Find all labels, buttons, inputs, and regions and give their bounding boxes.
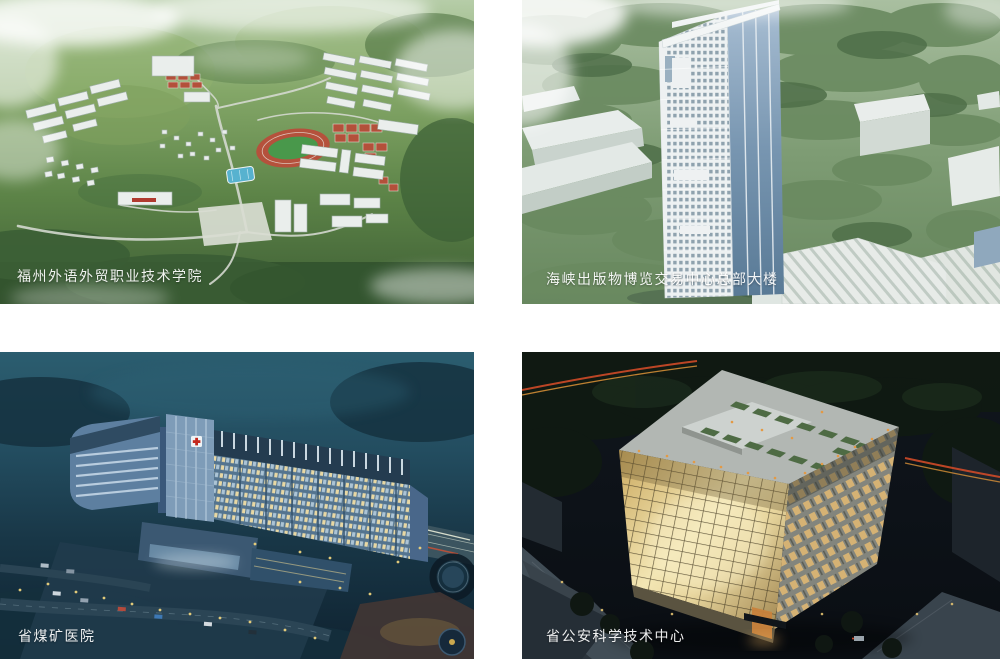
- project-figure-campus: [0, 0, 474, 304]
- portfolio-page: 福州外语外贸职业技术学院 海峡出版物博览交易中心总部大楼 省煤矿医院 省公安科学…: [0, 0, 1000, 659]
- project-caption-tech: 省公安科学技术中心: [546, 628, 686, 646]
- campus-aerial-photo: [0, 0, 474, 304]
- project-figure-hospital: [0, 352, 474, 659]
- project-caption-campus: 福州外语外贸职业技术学院: [17, 268, 203, 286]
- project-caption-hospital: 省煤矿医院: [18, 628, 96, 646]
- tech-center-night-photo: [522, 352, 1000, 659]
- project-figure-tower: [522, 0, 1000, 304]
- tower-aerial-photo: [522, 0, 1000, 304]
- project-caption-tower: 海峡出版物博览交易中心总部大楼: [546, 271, 779, 289]
- project-figure-tech-center: [522, 352, 1000, 659]
- hospital-night-photo: [0, 352, 474, 659]
